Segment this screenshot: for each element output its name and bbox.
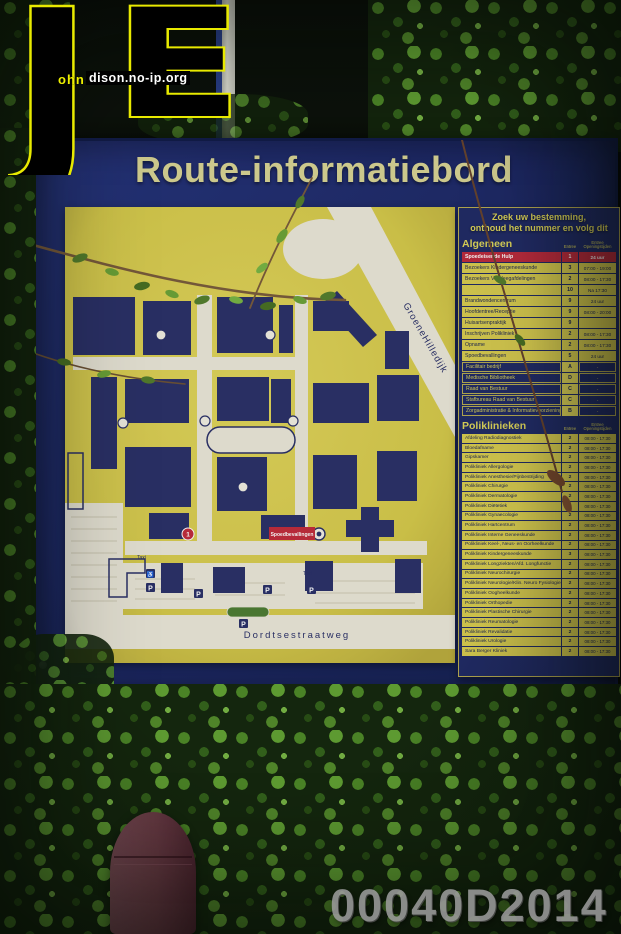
column-openingstijden: Entree Openingstijden — [579, 423, 616, 432]
table-row: Zorgadministratie & Informatievoorzienin… — [462, 406, 616, 416]
row-label: Facilitair bedrijf — [462, 362, 561, 372]
row-label: Polikliniek Anesthesie/Pijnbestrijding — [462, 473, 561, 482]
row-tijden: 08:00 - 17:30 — [579, 599, 616, 608]
row-label: Inschrijven Polikliniek — [462, 329, 561, 339]
row-entree: 2 — [562, 608, 578, 617]
row-tijden: Na 17:30 — [579, 285, 616, 295]
row-label: Bloedafname — [462, 444, 561, 453]
row-tijden: 08:00 - 17:30 — [579, 482, 616, 491]
row-entree: 9 — [562, 318, 578, 328]
row-entree: 2 — [562, 512, 578, 521]
row-entree: 2 — [562, 444, 578, 453]
row-tijden: 08:00 - 17:30 — [579, 541, 616, 550]
row-label: Polikliniek Neurologie/Klin. Neuro Fysio… — [462, 579, 561, 588]
row-tijden: 08:00 - 17:30 — [579, 550, 616, 559]
row-label: Hoofdentree/Receptie — [462, 307, 561, 317]
row-tijden: 08:00 - 17:30 — [579, 637, 616, 646]
row-entree: C — [562, 384, 578, 394]
row-entree: 2 — [562, 628, 578, 637]
table-row: Polikliniek Anesthesie/Pijnbestrijding20… — [462, 473, 616, 482]
row-entree: 2 — [562, 329, 578, 339]
row-entree: 2 — [562, 482, 578, 491]
row-entree: 9 — [562, 296, 578, 306]
row-entree: 2 — [562, 502, 578, 511]
row-label: Polikliniek Dermatologie — [462, 492, 561, 501]
row-tijden: 08:00 - 17:30 — [579, 628, 616, 637]
table-row: Polikliniek Diëtetiek208:00 - 17:30 — [462, 502, 616, 511]
row-label: Spoedeisende Hulp — [462, 252, 561, 262]
table-row: Spoedbevallingen524 uur — [462, 351, 616, 361]
table-row: Sara Berger Kliniek208:00 - 17:30 — [462, 647, 616, 656]
parking-p-icon: P — [265, 587, 270, 594]
table-row: Polikliniek Allergologie208:00 - 17:30 — [462, 463, 616, 472]
row-label: Polikliniek Interne Geneeskunde — [462, 531, 561, 540]
table-row: Bezoekers Kindergeneeskunde307:00 - 19:0… — [462, 263, 616, 273]
row-tijden: 08:00 - 17:30 — [579, 434, 616, 443]
column-entree: Entree — [562, 427, 578, 432]
table-row: Polikliniek Gynaecologie208:00 - 17:30 — [462, 512, 616, 521]
row-tijden: - — [579, 384, 616, 394]
row-label: Polikliniek Allergologie — [462, 463, 561, 472]
row-label: Bezoekers Kindergeneeskunde — [462, 263, 561, 273]
table-row: Spoedeisende Hulp124 uur — [462, 252, 616, 262]
row-label: Polikliniek Keel-, Neus- en Oorheelkunde — [462, 541, 561, 550]
row-tijden: - — [579, 362, 616, 372]
row-entree: 2 — [562, 541, 578, 550]
street-name-dordtsestraatweg: Dordtsestraatweg — [244, 630, 350, 641]
row-entree: 2 — [562, 453, 578, 462]
row-tijden: 08:00 - 17:30 — [579, 329, 616, 339]
table-row: Polikliniek Revalidatie208:00 - 17:30 — [462, 628, 616, 637]
parking-p-icon: P — [196, 591, 201, 598]
wheelchair-icon: ♿ — [147, 571, 155, 579]
row-label: Zorgadministratie & Informatievoorzienin… — [462, 406, 561, 416]
table-row: Hoofdentree/Receptie908:00 - 20:00 — [462, 307, 616, 317]
row-tijden: 08:00 - 17:30 — [579, 521, 616, 530]
row-entree: D — [562, 373, 578, 383]
row-entree: 2 — [562, 492, 578, 501]
poliklinieken-header: Poliklinieken Entree Entree Openingstijd… — [462, 420, 616, 432]
row-tijden: 08:00 - 17:30 — [579, 647, 616, 656]
row-label: Polikliniek Neurochirurgie — [462, 570, 561, 579]
table-row: Polikliniek Plastische Chirurgie208:00 -… — [462, 608, 616, 617]
table-row: Facilitair bedrijfA- — [462, 362, 616, 372]
table-row: Brandwondencentrum924 uur — [462, 296, 616, 306]
marker-entree-1-number: 1 — [186, 531, 190, 538]
table-row: Polikliniek Urologie208:00 - 17:30 — [462, 637, 616, 646]
row-entree: 2 — [562, 589, 578, 598]
row-label: Polikliniek Oogheelkunde — [462, 589, 561, 598]
row-label: Spoedbevallingen — [462, 351, 561, 361]
row-tijden: 08:00 - 17:30 — [579, 340, 616, 350]
table-row: 10Na 17:30 — [462, 285, 616, 295]
table-row: Afdeling Radiodiagnostiek208:00 - 17:30 — [462, 434, 616, 443]
row-label: Polikliniek Orthopedie — [462, 599, 561, 608]
row-tijden: 07:00 - 19:00 — [579, 263, 616, 273]
taxi-label: Taxi — [303, 571, 312, 577]
table-row: Polikliniek Longziekten/Afd. Longfunctie… — [462, 560, 616, 569]
row-entree: A — [562, 362, 578, 372]
row-label: Polikliniek Longziekten/Afd. Longfunctie — [462, 560, 561, 569]
row-label: Polikliniek Revalidatie — [462, 628, 561, 637]
row-entree: B — [562, 406, 578, 416]
row-tijden: - — [579, 406, 616, 416]
algemeen-header: Algemeen Entree Entree Openingstijden — [462, 238, 616, 250]
row-label: Stafbureau Raad van Bestuur — [462, 395, 561, 405]
row-tijden: 08:00 - 17:30 — [579, 531, 616, 540]
row-tijden — [579, 318, 616, 328]
row-tijden: 08:00 - 17:30 — [579, 589, 616, 598]
column-headers: Entree Entree Openingstijden — [562, 241, 616, 250]
row-entree: 3 — [562, 263, 578, 273]
panel-instruction: Zoek uw bestemming, onthoud het nummer e… — [462, 212, 616, 234]
row-entree: 2 — [562, 599, 578, 608]
row-tijden: 08:00 - 17:30 — [579, 570, 616, 579]
row-entree: 2 — [562, 560, 578, 569]
table-row: Bloedafname208:00 - 17:30 — [462, 444, 616, 453]
section-title-algemeen: Algemeen — [462, 238, 562, 250]
table-row: Polikliniek Interne Geneeskunde208:00 - … — [462, 531, 616, 540]
parking-p-icon: P — [241, 621, 246, 628]
parking-p-icon: P — [309, 587, 314, 594]
foliage — [138, 94, 308, 144]
row-tijden: - — [579, 373, 616, 383]
table-row: Polikliniek Oogheelkunde208:00 - 17:30 — [462, 589, 616, 598]
column-openingstijden: Entree Openingstijden — [579, 241, 616, 250]
row-tijden: 08:00 - 17:30 — [579, 444, 616, 453]
row-entree: C — [562, 395, 578, 405]
row-entree: 2 — [562, 570, 578, 579]
bollard — [110, 812, 196, 934]
table-row: Polikliniek Dermatologie208:00 - 17:30 — [462, 492, 616, 501]
row-label: Brandwondencentrum — [462, 296, 561, 306]
row-label: Polikliniek Reumatologie — [462, 618, 561, 627]
column-headers: Entree Entree Openingstijden — [562, 423, 616, 432]
row-label — [462, 285, 561, 295]
section-title-poliklinieken: Poliklinieken — [462, 420, 562, 432]
table-row: Polikliniek Chirurgie208:00 - 17:30 — [462, 482, 616, 491]
row-tijden: 08:00 - 17:30 — [579, 512, 616, 521]
table-row: Polikliniek Neurochirurgie208:00 - 17:30 — [462, 570, 616, 579]
row-tijden: 08:00 - 17:30 — [579, 473, 616, 482]
row-entree: 2 — [562, 579, 578, 588]
row-label: Raad van Bestuur — [462, 384, 561, 394]
row-entree: 2 — [562, 340, 578, 350]
row-entree: 3 — [562, 550, 578, 559]
row-tijden: 08:00 - 17:30 — [579, 579, 616, 588]
row-entree: 2 — [562, 473, 578, 482]
table-row: Raad van BestuurC- — [462, 384, 616, 394]
table-row: Polikliniek Neurologie/Klin. Neuro Fysio… — [462, 579, 616, 588]
row-entree: 2 — [562, 647, 578, 656]
table-row: Polikliniek Hartcentrum208:00 - 17:30 — [462, 521, 616, 530]
row-tijden: - — [579, 395, 616, 405]
row-tijden: 08:00 - 17:30 — [579, 560, 616, 569]
row-entree: 2 — [562, 434, 578, 443]
table-row: Bezoekers Verpleegafdelingen208:00 - 17:… — [462, 274, 616, 284]
row-label: Polikliniek Chirurgie — [462, 482, 561, 491]
taxi-label: Taxi — [137, 555, 146, 561]
row-tijden: 24 uur — [579, 252, 616, 262]
table-row: Opname208:00 - 17:30 — [462, 340, 616, 350]
row-entree: 1 — [562, 252, 578, 262]
row-entree: 2 — [562, 637, 578, 646]
poliklinieken-table: Afdeling Radiodiagnostiek208:00 - 17:30B… — [462, 434, 616, 656]
row-tijden: 08:00 - 20:00 — [579, 307, 616, 317]
table-row: Stafbureau Raad van BestuurC- — [462, 395, 616, 405]
row-label: Opname — [462, 340, 561, 350]
column-entree: Entree — [562, 245, 578, 250]
row-label: Polikliniek Hartcentrum — [462, 521, 561, 530]
row-entree: 2 — [562, 531, 578, 540]
row-entree: 9 — [562, 307, 578, 317]
table-row: Medische BibliotheekD- — [462, 373, 616, 383]
row-entree: 2 — [562, 618, 578, 627]
row-label: Polikliniek Urologie — [462, 637, 561, 646]
row-label: Medische Bibliotheek — [462, 373, 561, 383]
row-entree: 2 — [562, 521, 578, 530]
table-row: Polikliniek Reumatologie208:00 - 17:30 — [462, 618, 616, 627]
row-entree: 10 — [562, 285, 578, 295]
row-label: Sara Berger Kliniek — [462, 647, 561, 656]
photo-scene: Route-informatiebord — [0, 0, 621, 934]
table-row: Huisartsenpraktijk9 — [462, 318, 616, 328]
row-tijden: 08:00 - 17:30 — [579, 463, 616, 472]
parking-p-icon: P — [148, 585, 153, 592]
table-row: Polikliniek Orthopedie208:00 - 17:30 — [462, 599, 616, 608]
table-row: Polikliniek Kindergeneeskunde308:00 - 17… — [462, 550, 616, 559]
row-label: Polikliniek Plastische Chirurgie — [462, 608, 561, 617]
row-tijden: 08:00 - 17:30 — [579, 274, 616, 284]
spoedbevallingen-label: Spoedbevallingen — [271, 532, 314, 538]
row-tijden: 08:00 - 17:30 — [579, 453, 616, 462]
campus-map: 1 Spoedbevallingen P P P — [65, 207, 455, 663]
table-row: Polikliniek Keel-, Neus- en Oorheelkunde… — [462, 541, 616, 550]
row-tijden: 08:00 - 17:30 — [579, 502, 616, 511]
directory-panel: Zoek uw bestemming, onthoud het nummer e… — [458, 207, 620, 677]
row-label: Polikliniek Diëtetiek — [462, 502, 561, 511]
row-label: Polikliniek Gynaecologie — [462, 512, 561, 521]
instruction-line2: onthoud het nummer en volg dit — [462, 223, 616, 234]
row-tijden: 08:00 - 17:30 — [579, 618, 616, 627]
row-tijden: 08:00 - 17:30 — [579, 608, 616, 617]
row-label: Bezoekers Verpleegafdelingen — [462, 274, 561, 284]
transit-stop-label — [227, 607, 269, 617]
row-label: Huisartsenpraktijk — [462, 318, 561, 328]
instruction-line1: Zoek uw bestemming, — [462, 212, 616, 223]
table-row: Inschrijven Polikliniek208:00 - 17:30 — [462, 329, 616, 339]
foliage — [368, 0, 621, 152]
row-entree: 2 — [562, 463, 578, 472]
row-label: Gipskamer — [462, 453, 561, 462]
sign-title: Route-informatiebord — [33, 149, 615, 191]
row-entree: 2 — [562, 274, 578, 284]
row-tijden: 08:00 - 17:30 — [579, 492, 616, 501]
row-entree: 5 — [562, 351, 578, 361]
row-label: Polikliniek Kindergeneeskunde — [462, 550, 561, 559]
row-tijden: 24 uur — [579, 351, 616, 361]
algemeen-table: Spoedeisende Hulp124 uurBezoekers Kinder… — [462, 252, 616, 416]
row-tijden: 24 uur — [579, 296, 616, 306]
watermark-photo-id: 00040D2014 — [330, 880, 608, 932]
table-row: Gipskamer208:00 - 17:30 — [462, 453, 616, 462]
row-label: Afdeling Radiodiagnostiek — [462, 434, 561, 443]
route-information-sign: Route-informatiebord — [30, 138, 618, 700]
